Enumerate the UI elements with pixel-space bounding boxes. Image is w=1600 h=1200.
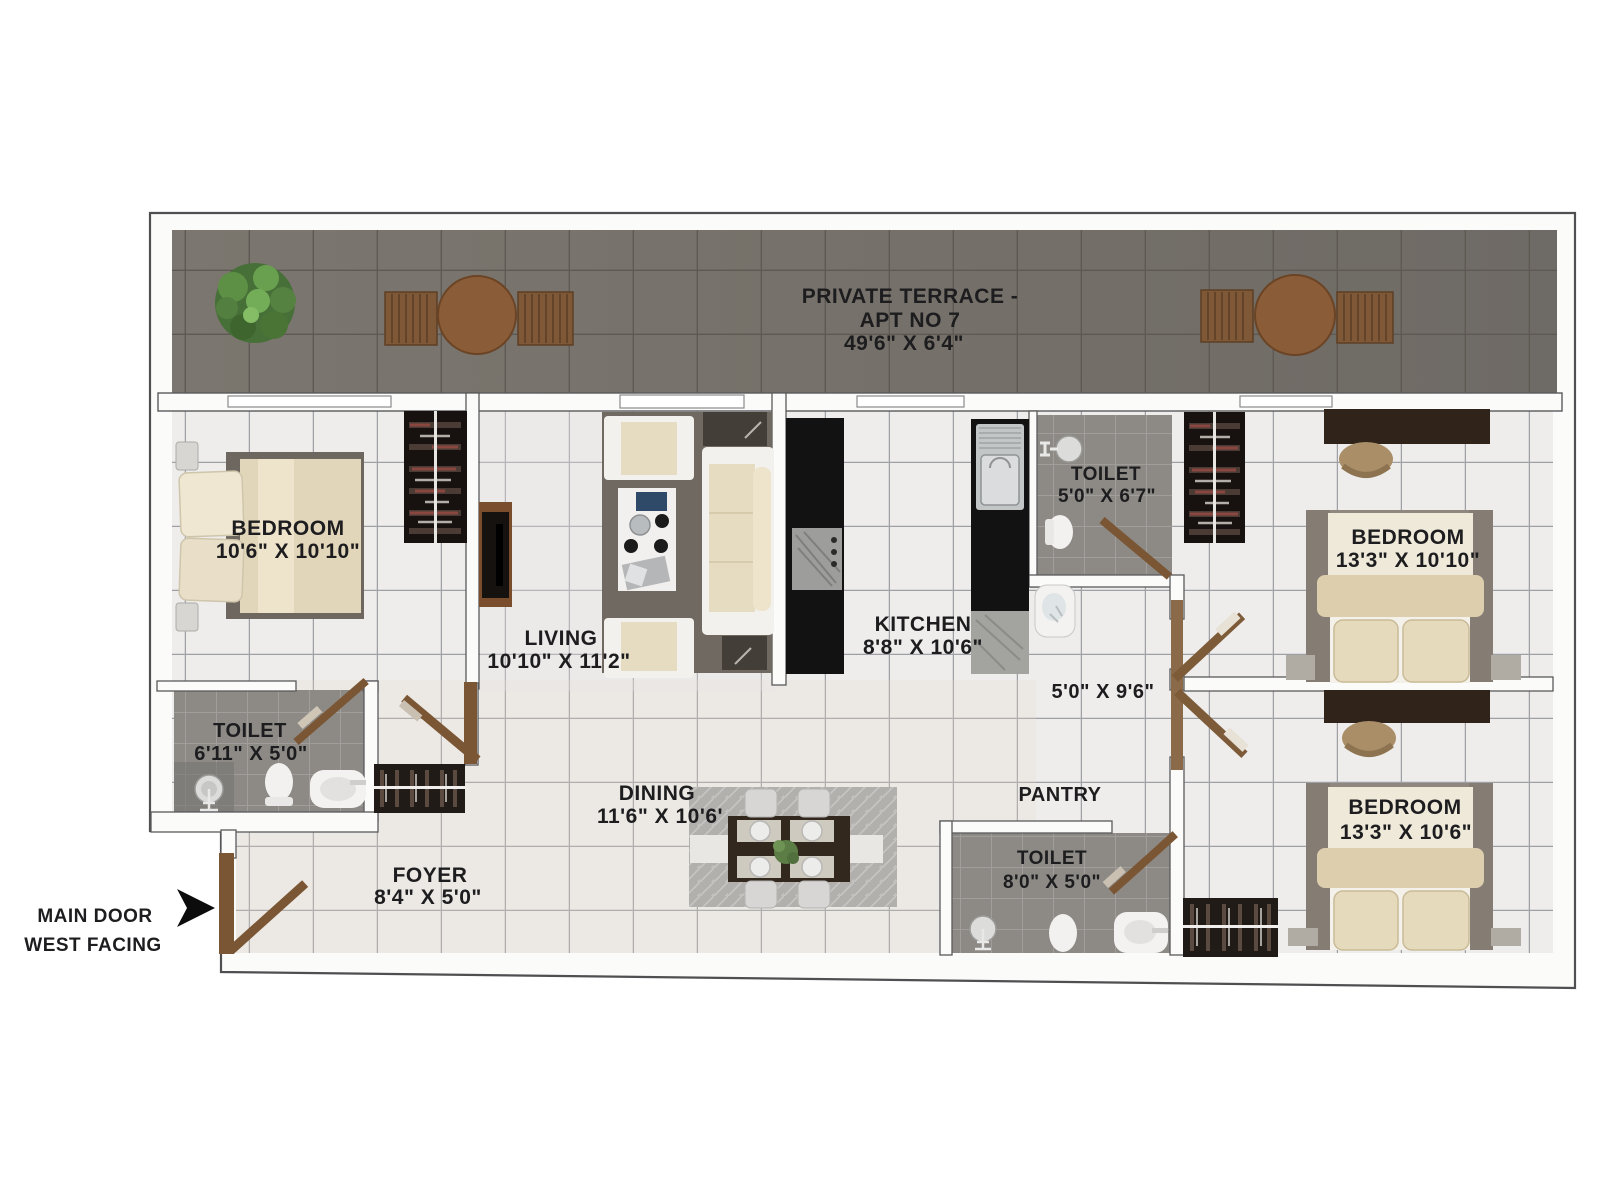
svg-text:13'3" X 10'6": 13'3" X 10'6" bbox=[1340, 821, 1472, 844]
svg-text:WEST FACING: WEST FACING bbox=[24, 935, 161, 956]
svg-text:49'6" X 6'4": 49'6" X 6'4" bbox=[844, 332, 964, 355]
svg-text:BEDROOM: BEDROOM bbox=[1351, 526, 1464, 549]
svg-text:10'10" X 11'2": 10'10" X 11'2" bbox=[487, 650, 630, 673]
svg-text:APT NO 7: APT NO 7 bbox=[860, 309, 961, 332]
svg-text:11'6" X 10'6': 11'6" X 10'6' bbox=[597, 805, 723, 828]
svg-text:8'0" X 5'0": 8'0" X 5'0" bbox=[1003, 872, 1101, 893]
svg-text:5'0" X 6'7": 5'0" X 6'7" bbox=[1058, 486, 1156, 507]
svg-text:TOILET: TOILET bbox=[1071, 464, 1141, 485]
svg-text:LIVING: LIVING bbox=[524, 627, 597, 650]
svg-text:PANTRY: PANTRY bbox=[1019, 784, 1102, 806]
svg-text:BEDROOM: BEDROOM bbox=[231, 517, 344, 540]
svg-text:BEDROOM: BEDROOM bbox=[1348, 796, 1461, 819]
svg-text:TOILET: TOILET bbox=[213, 720, 287, 742]
svg-text:6'11" X 5'0": 6'11" X 5'0" bbox=[194, 743, 307, 765]
svg-text:DINING: DINING bbox=[619, 782, 696, 805]
svg-text:MAIN DOOR: MAIN DOOR bbox=[37, 906, 152, 927]
svg-text:10'6" X 10'10": 10'6" X 10'10" bbox=[216, 540, 360, 563]
svg-text:FOYER: FOYER bbox=[393, 864, 468, 887]
svg-text:5'0" X 9'6": 5'0" X 9'6" bbox=[1052, 681, 1155, 703]
svg-text:TOILET: TOILET bbox=[1017, 848, 1087, 869]
svg-text:8'8" X 10'6": 8'8" X 10'6" bbox=[863, 636, 983, 659]
svg-text:8'4" X 5'0": 8'4" X 5'0" bbox=[374, 886, 482, 909]
svg-text:PRIVATE TERRACE -: PRIVATE TERRACE - bbox=[802, 285, 1019, 308]
svg-text:13'3" X 10'10": 13'3" X 10'10" bbox=[1336, 549, 1480, 572]
svg-text:KITCHEN: KITCHEN bbox=[875, 613, 972, 636]
